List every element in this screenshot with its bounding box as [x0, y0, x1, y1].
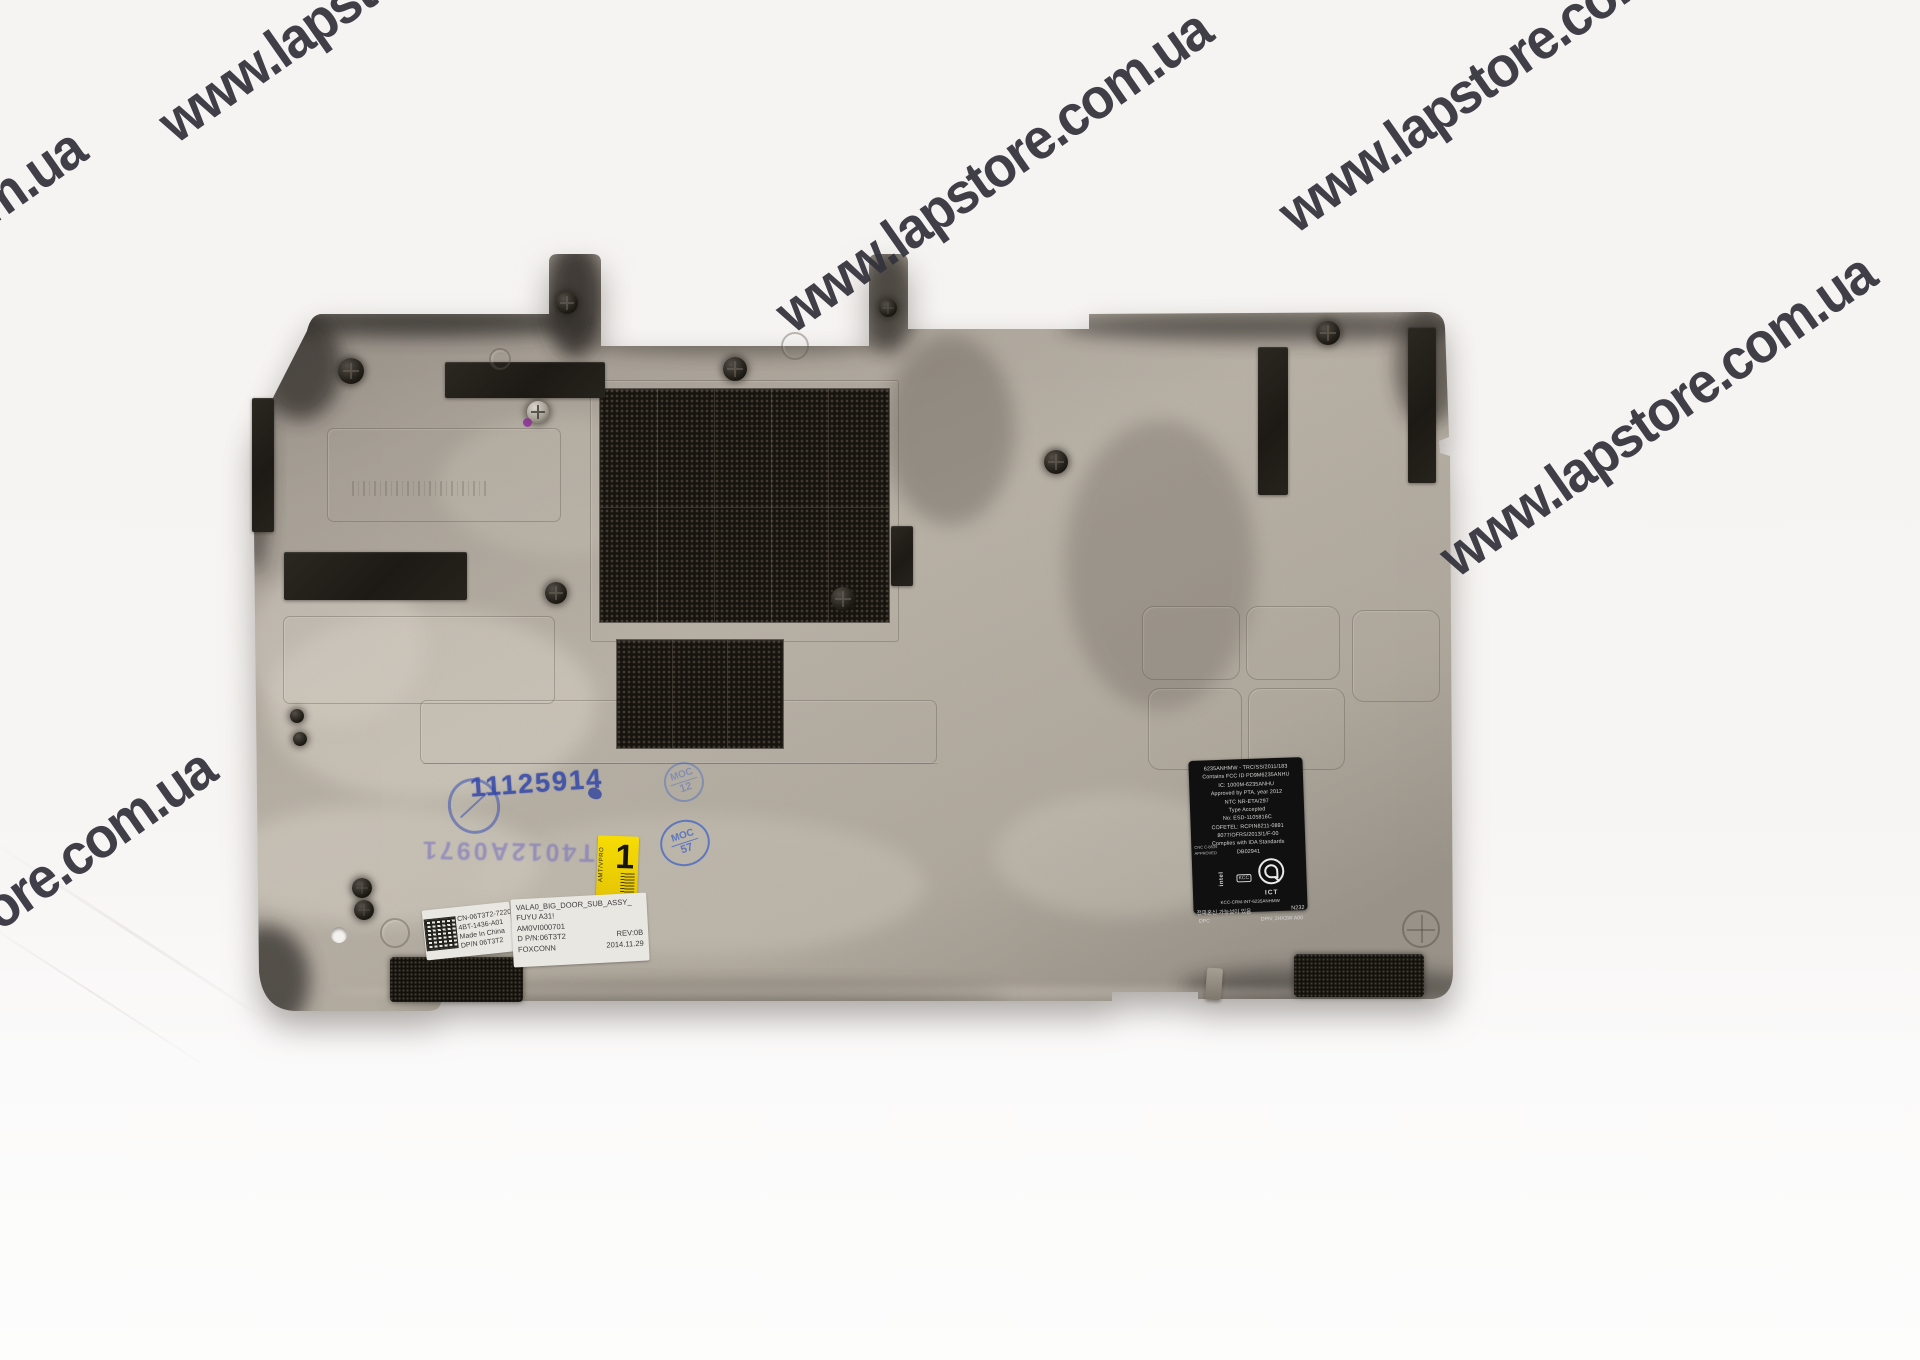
rubber-strip — [891, 526, 913, 586]
ict-logo-icon — [1258, 858, 1285, 885]
panel-hole — [331, 927, 347, 943]
dell-part-label: CN-06T3T2-72206- 4BT-1436-A01 Made In Ch… — [422, 902, 515, 961]
screw — [338, 358, 364, 384]
molded-cross-circle — [1402, 910, 1440, 948]
molded-outline — [1148, 688, 1242, 770]
molded-outline — [327, 428, 561, 522]
speaker-grille-right — [1294, 954, 1424, 997]
rubber-strip — [1258, 347, 1288, 495]
rubber-strip — [252, 398, 274, 532]
assembly-label-vendor: FOXCONN — [518, 943, 556, 955]
screw — [831, 587, 855, 611]
screw — [1044, 450, 1068, 474]
molded-circle — [489, 348, 511, 370]
sticker-side-text: AMT/VPRO — [598, 847, 605, 883]
moc-number: 57 — [679, 841, 694, 856]
n232-code: N232 — [1291, 905, 1305, 913]
screw — [1316, 321, 1340, 345]
datamatrix-code — [425, 917, 458, 950]
molded-outline — [1246, 606, 1340, 680]
screw — [723, 357, 747, 381]
sticker-number: 1 — [615, 838, 635, 878]
yellow-config-sticker: 1 AMT/VPRO — [596, 835, 639, 898]
hinge-pin — [1205, 967, 1223, 1000]
molded-outline — [283, 616, 555, 704]
rubber-strip — [445, 362, 605, 398]
regulatory-label: 6235ANHMW - TRC/SS/2011/183 Contains FCC… — [1188, 757, 1307, 914]
paint-mark — [523, 418, 532, 427]
intel-logo: intel — [1219, 872, 1226, 887]
rubber-strip — [1408, 327, 1436, 483]
moc-number: 12 — [678, 780, 693, 795]
screw — [879, 299, 897, 317]
rubber-strip — [284, 552, 467, 600]
speaker-grille-left — [390, 957, 523, 1002]
embossed-part-number — [352, 481, 490, 496]
kcc-mark: KCC — [1236, 874, 1251, 883]
screw — [556, 292, 578, 314]
molded-circle — [380, 918, 410, 948]
dpc-code: DPC — [1199, 918, 1210, 924]
inverted-ink-stamp: T4012A0971 — [420, 834, 595, 866]
lower-vent-mesh — [617, 640, 783, 748]
screw — [290, 709, 304, 723]
ict-logo-text: ICT — [1259, 889, 1285, 897]
assembly-label: VALA0_BIG_DOOR_SUB_ASSY_ FUYU A31! AM0VI… — [510, 892, 649, 967]
screw — [354, 900, 374, 920]
screw — [352, 878, 372, 898]
assembly-label-date: 2014.11.29 — [606, 939, 644, 951]
molded-outline — [1142, 606, 1240, 680]
molded-outline — [1352, 610, 1440, 702]
screw — [293, 732, 307, 746]
regulatory-micro: APPROVED — [1195, 850, 1218, 857]
screw — [545, 582, 567, 604]
